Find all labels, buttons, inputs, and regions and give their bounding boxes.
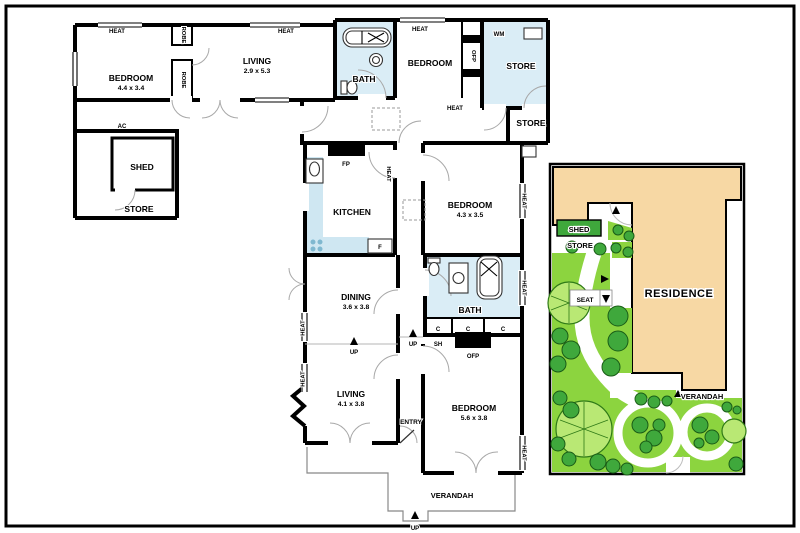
robe-marker: ROBE <box>180 27 186 44</box>
room-label-shed: SHED <box>130 162 154 172</box>
tree-icon <box>563 402 579 418</box>
tree-icon <box>551 437 565 451</box>
tree-icon <box>623 247 633 257</box>
tree-icon <box>722 402 732 412</box>
tree-icon <box>705 430 719 444</box>
tree-icon <box>722 419 746 443</box>
room-dims-bedroom-e: 4.3 x 3.5 <box>457 212 484 219</box>
tree-icon <box>621 463 633 475</box>
site-seat-label: SEAT <box>577 297 594 304</box>
tree-icon <box>606 459 620 473</box>
ac-marker: AC <box>118 124 127 130</box>
floorplan-svg: BEDROOM 4.4 x 3.4 LIVING 2.9 x 5.3 SHED … <box>0 0 800 533</box>
tree-icon <box>662 396 672 406</box>
heat-marker: HEAT <box>521 280 527 296</box>
heat-marker: HEAT <box>385 166 391 182</box>
fp-marker: FP <box>342 162 350 168</box>
site-shed-label: SHED <box>569 225 590 234</box>
tree-icon <box>552 328 568 344</box>
ofp-marker: OFP <box>467 354 479 360</box>
room-label-entry: ENTRY <box>400 419 422 426</box>
room-label-dining: DINING <box>341 292 371 302</box>
tree-icon <box>624 231 634 241</box>
tree-icon <box>562 341 580 359</box>
tree-icon <box>611 243 621 253</box>
room-label-kitchen: KITCHEN <box>333 207 371 217</box>
tree-icon <box>632 417 648 433</box>
chimney-box <box>522 146 536 157</box>
room-label-living-s: LIVING <box>337 389 366 399</box>
room-dims-bedroom-nw: 4.4 x 3.4 <box>118 85 145 92</box>
heat-marker: HEAT <box>301 371 307 387</box>
fridge-marker: F <box>378 245 382 251</box>
room-label-bedroom-n: BEDROOM <box>408 58 452 68</box>
room-label-bedroom-e: BEDROOM <box>448 200 492 210</box>
bathtub-icon <box>343 28 391 47</box>
room-label-store-ne: STORE <box>506 61 535 71</box>
cupboard-marker: C <box>466 327 471 333</box>
up-marker: UP <box>350 350 358 356</box>
heat-marker: HEAT <box>521 445 527 461</box>
robe-marker: ROBE <box>180 72 186 89</box>
heat-marker: HEAT <box>447 106 463 112</box>
floorplan-page: BEDROOM 4.4 x 3.4 LIVING 2.9 x 5.3 SHED … <box>0 0 800 533</box>
room-label-verandah: VERANDAH <box>431 491 474 500</box>
tree-icon <box>562 452 576 466</box>
tree-icon <box>692 417 708 433</box>
room-label-bedroom-nw: BEDROOM <box>109 73 153 83</box>
heat-marker: HEAT <box>278 29 294 35</box>
room-label-living-nw: LIVING <box>243 56 272 66</box>
room-label-bath-n: BATH <box>353 74 376 84</box>
wm-marker: WM <box>494 32 505 38</box>
heat-marker: HEAT <box>521 193 527 209</box>
kitchen-fireplace <box>328 143 365 156</box>
tree-icon <box>608 306 628 326</box>
garden-gate <box>666 457 690 473</box>
tree-icon <box>653 419 665 431</box>
fireplace-chimney <box>462 69 482 77</box>
tree-icon <box>550 356 566 372</box>
washing-machine-icon <box>524 28 542 39</box>
site-residence-label: RESIDENCE <box>645 288 714 300</box>
room-dims-living-s: 4.1 x 3.8 <box>338 401 365 408</box>
cupboard-marker: C <box>501 327 506 333</box>
up-marker: UP <box>409 342 417 348</box>
toilet-icon <box>428 258 440 276</box>
heat-marker: HEAT <box>412 27 428 33</box>
room-dims-bedroom-s: 5.6 x 3.8 <box>461 415 488 422</box>
cupboard-marker: C <box>436 327 441 333</box>
room-label-bedroom-s: BEDROOM <box>452 403 496 413</box>
tree-icon <box>613 225 623 235</box>
tree-icon <box>729 457 743 471</box>
kitchen-sink-icon <box>306 159 323 183</box>
site-verandah-label: VERANDAH <box>681 392 724 401</box>
tree-icon <box>733 406 741 414</box>
up-marker: UP <box>411 526 419 532</box>
tree-icon <box>590 454 606 470</box>
heat-marker: HEAT <box>301 320 307 336</box>
ofp-marker: OFP <box>470 50 476 62</box>
fireplace-chimney <box>462 35 482 43</box>
room-label-store-sw: STORE <box>124 204 153 214</box>
site-plan <box>548 164 746 475</box>
ofp-fireplace <box>455 332 491 348</box>
tree-icon <box>648 396 660 408</box>
basin-icon <box>370 54 383 67</box>
tree-icon <box>635 393 647 405</box>
tree-icon <box>602 358 620 376</box>
shelf-marker: SH <box>434 342 442 348</box>
site-store-label: STORE <box>567 241 593 250</box>
vanity-icon <box>449 263 468 293</box>
room-dims-living-nw: 2.9 x 5.3 <box>244 68 271 75</box>
tree-icon <box>553 391 567 405</box>
tree-icon <box>640 441 652 453</box>
tree-icon <box>694 438 704 448</box>
room-label-store-ne2: STORE <box>516 118 545 128</box>
room-label-bath-c: BATH <box>459 305 482 315</box>
bathtub-icon <box>477 256 502 299</box>
room-dims-dining: 3.6 x 3.8 <box>343 304 370 311</box>
tree-icon <box>594 243 606 255</box>
heat-marker: HEAT <box>109 29 125 35</box>
tree-icon <box>608 331 628 351</box>
